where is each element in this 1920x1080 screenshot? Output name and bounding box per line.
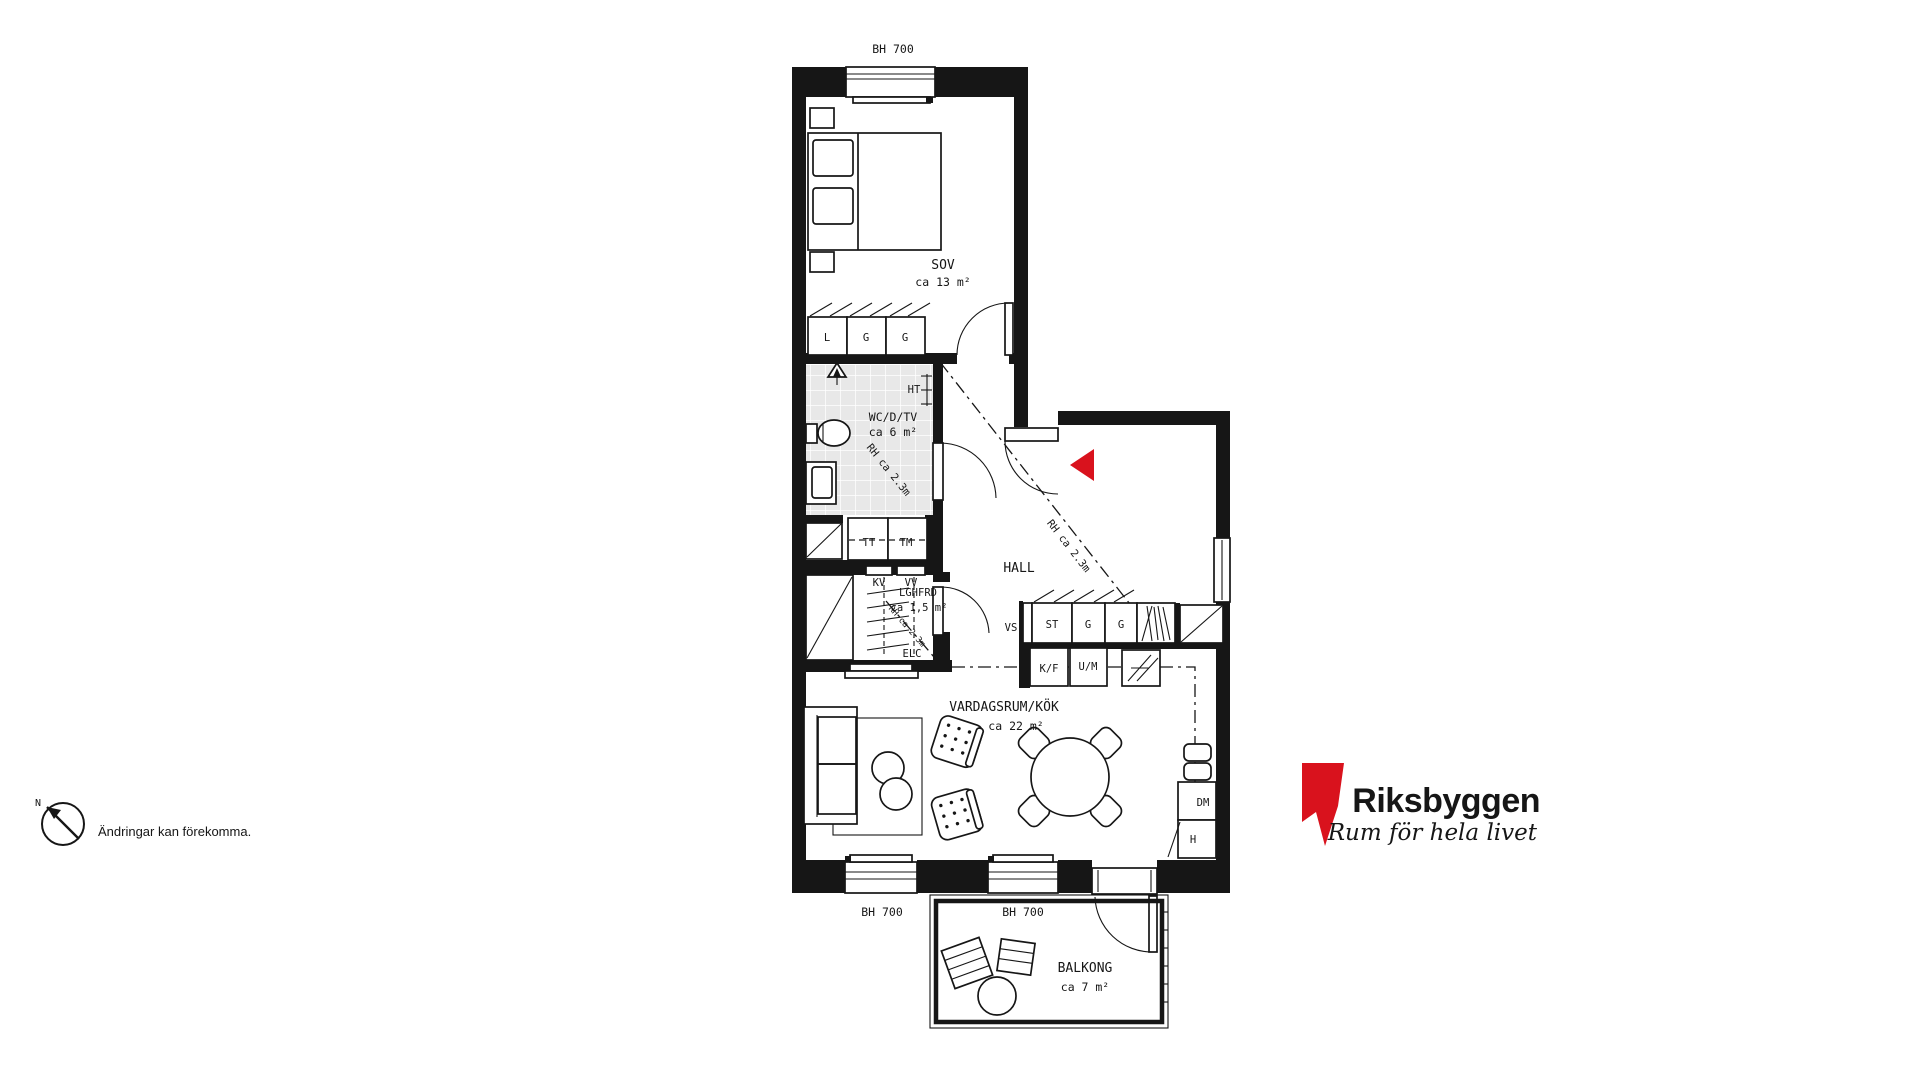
bedroom-door	[957, 303, 1013, 355]
area-label-vardagsrum: ca 22 m²	[988, 719, 1043, 733]
coat-rack	[1137, 603, 1175, 643]
room-label-wc: WC/D/TV	[869, 410, 918, 424]
room-label-sov: SOV	[931, 258, 955, 273]
window	[988, 855, 1058, 893]
stove-icon	[1122, 650, 1160, 686]
coffee-table	[880, 778, 912, 810]
water-shaft	[1023, 603, 1032, 643]
fixture-label-ht: HT	[908, 384, 921, 396]
nightstand	[810, 252, 834, 272]
north-label: N	[35, 798, 41, 809]
area-label-wc: ca 6 m²	[869, 425, 917, 439]
fixture-label-um: U/M	[1079, 661, 1098, 673]
fixture-label-st: ST	[1046, 619, 1059, 631]
laundry-units	[848, 518, 927, 560]
window	[846, 67, 935, 103]
fixture-label-tt: TT	[863, 537, 876, 549]
brand-name: Riksbyggen	[1352, 782, 1540, 820]
window-head-label: BH 700	[861, 905, 903, 919]
room-label-vardagsrum: VARDAGSRUM/KÖK	[949, 698, 1059, 715]
fixture-label-kv: KV	[873, 577, 886, 589]
toilet-icon	[806, 420, 850, 446]
window	[1214, 538, 1230, 602]
hot-water-valve	[897, 566, 925, 575]
fixture-label-h: H	[1190, 834, 1196, 846]
fixture-label-elc: ELC	[903, 648, 922, 660]
nightstand	[810, 108, 834, 128]
window-head-label: BH 700	[1002, 905, 1044, 919]
fixture-label-l: L	[824, 332, 830, 344]
cold-water-valve	[866, 566, 892, 575]
balcony	[930, 895, 1168, 1028]
floorplan-page: BH 700 BH 700 BH 700 SOV ca 13 m² WC/D/T…	[0, 0, 1920, 1080]
fixture-label-dm: DM	[1197, 797, 1210, 809]
armchair	[929, 714, 984, 769]
living-room-furniture	[804, 707, 1124, 842]
fixture-label-g: G	[1118, 619, 1124, 631]
balcony-chair	[997, 939, 1035, 975]
floor-plan: BH 700 BH 700 BH 700 SOV ca 13 m² WC/D/T…	[0, 0, 1920, 1080]
north-arrow: N	[35, 798, 84, 845]
area-label-sov: ca 13 m²	[915, 275, 970, 289]
sofa	[804, 707, 857, 824]
entrance-door	[1005, 428, 1058, 494]
room-label-hall: HALL	[1003, 561, 1034, 576]
armchair	[930, 787, 984, 841]
dining-table	[1031, 738, 1109, 816]
room-label-balkong: BALKONG	[1058, 961, 1113, 976]
fixture-label-g: G	[863, 332, 869, 344]
tall-cabinet	[1178, 820, 1216, 858]
electrical-cabinet	[845, 671, 918, 678]
window-head-label: BH 700	[872, 42, 914, 56]
area-label-balkong: ca 7 m²	[1061, 980, 1109, 994]
fixture-label-vv: VV	[905, 577, 918, 589]
bedroom-wardrobes	[808, 303, 930, 355]
fixture-label-vs: VS	[1005, 622, 1018, 634]
bathroom-door	[933, 443, 996, 500]
fixture-label-g: G	[902, 332, 908, 344]
double-bed	[808, 133, 941, 250]
sink-icon	[806, 462, 836, 504]
dining-set	[1016, 725, 1125, 830]
riksbyggen-logo: Riksbyggen Rum för hela livet	[1302, 763, 1540, 846]
brand-tagline: Rum för hela livet	[1327, 820, 1538, 846]
fixture-label-tm: TM	[900, 537, 913, 549]
balcony-table	[978, 977, 1016, 1015]
kitchen-sink-icon	[1184, 744, 1211, 780]
hall-wardrobes	[1023, 590, 1223, 643]
fixture-label-kf: K/F	[1040, 663, 1059, 675]
fixture-label-g: G	[1085, 619, 1091, 631]
window	[845, 855, 917, 893]
balcony-door	[1092, 868, 1157, 952]
bedroom-furniture	[808, 108, 941, 355]
entrance-arrow	[1070, 449, 1094, 481]
disclaimer-text: Ändringar kan förekomma.	[98, 824, 251, 839]
electrical-cabinet	[850, 664, 912, 671]
